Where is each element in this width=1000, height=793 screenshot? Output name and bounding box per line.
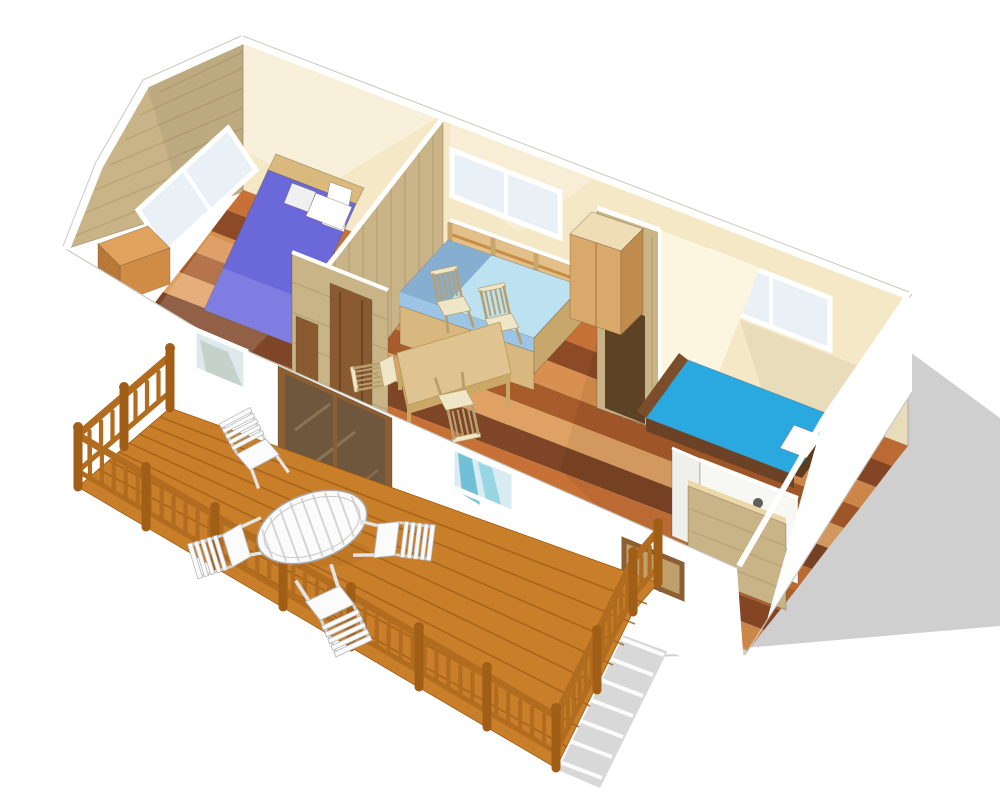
floorplan-3d-render xyxy=(0,0,1000,793)
scene-canvas xyxy=(0,0,1000,793)
wardrobe-cabinet xyxy=(570,212,643,335)
